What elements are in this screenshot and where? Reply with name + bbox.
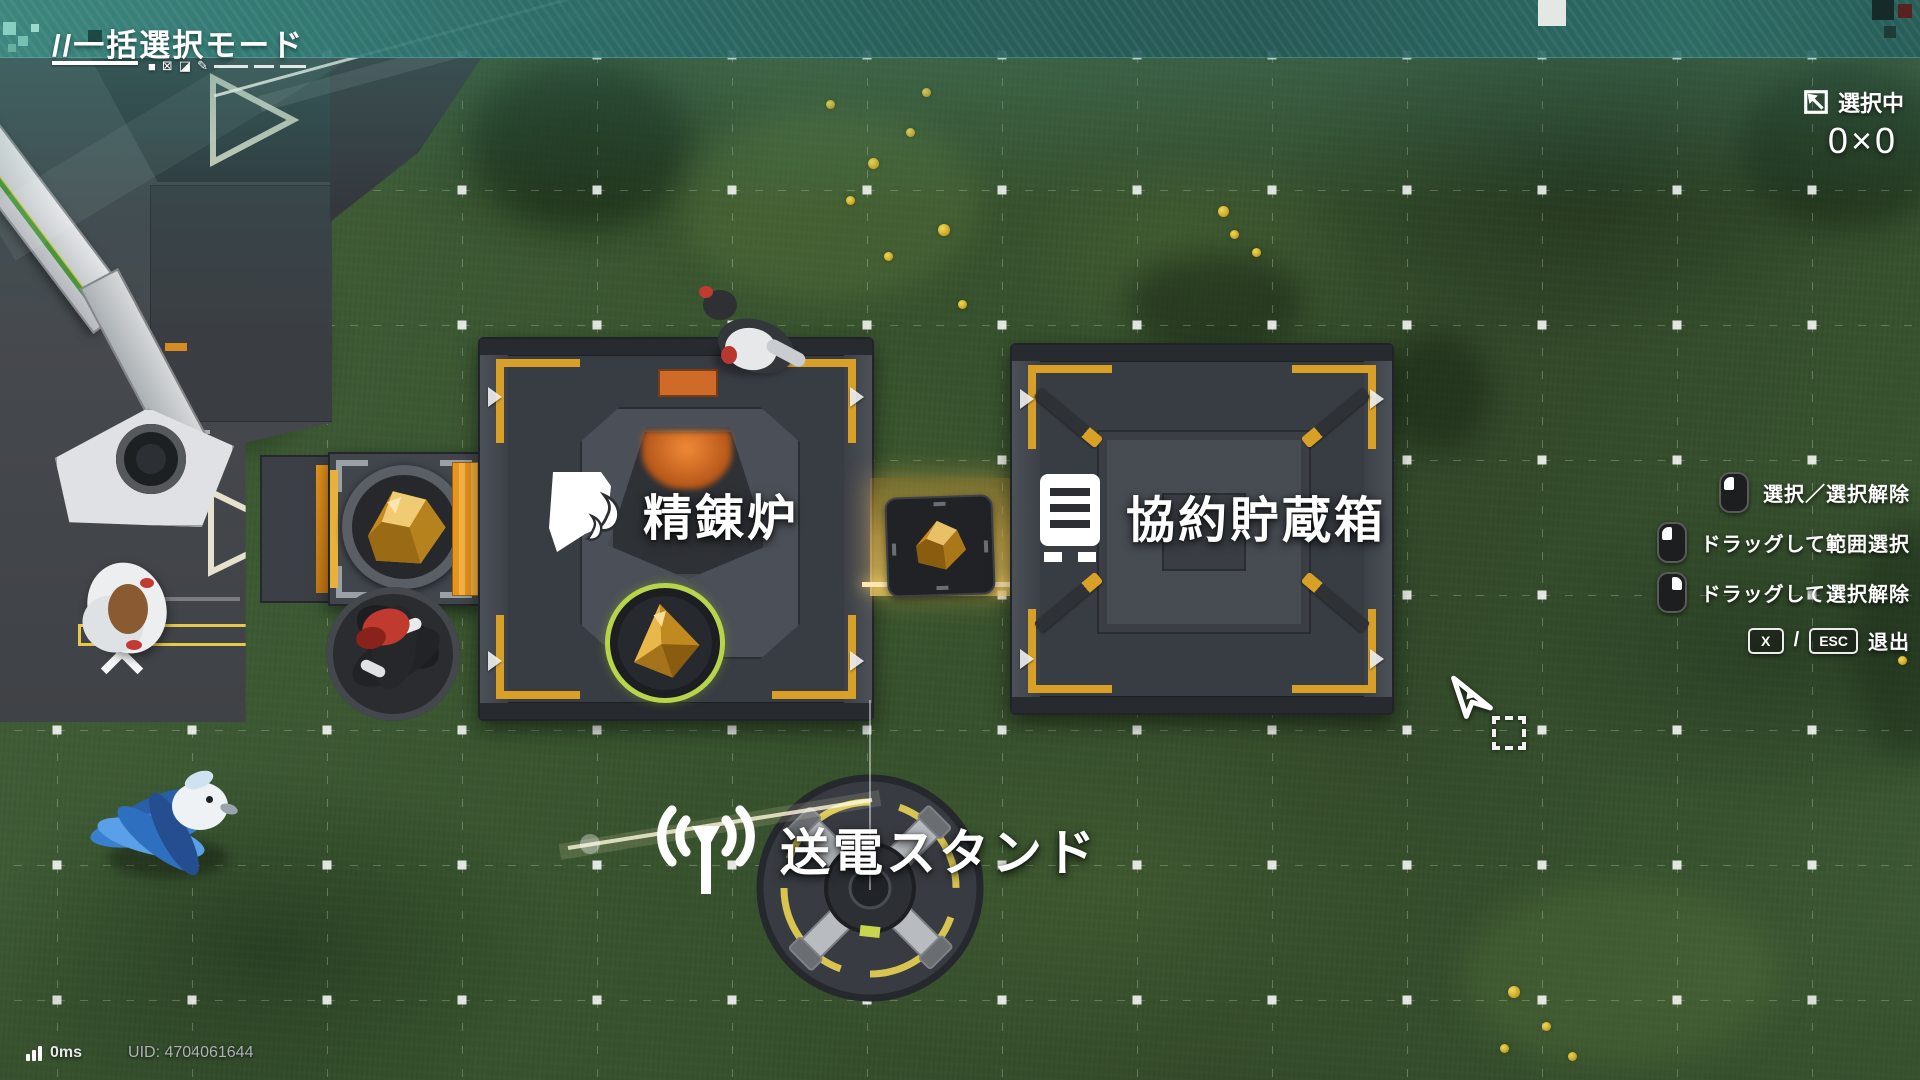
hint-exit: X / ESC 退出 [1748,626,1910,655]
key-x: X [1748,628,1784,654]
status-bar: 0ms UID: 4704061644 [26,1044,253,1062]
banner-pixel-decor [18,36,28,46]
banner-pixel-decor [8,44,16,52]
uid-value: UID: 4704061644 [128,1044,253,1062]
filled-square-icon: ■ [148,59,156,74]
mini-text-bar [254,65,274,68]
hint-exit-label: 退出 [1868,626,1910,655]
hint-drag-deselect-label: ドラッグして選択解除 [1701,578,1910,607]
banner-pixel-decor [1884,26,1896,38]
mouse-left-icon [1657,522,1687,563]
hint-drag-deselect: ドラッグして選択解除 [1657,572,1910,613]
selection-status: 選択中 0×0 [1802,86,1904,162]
hint-drag-select: ドラッグして範囲選択 [1657,522,1910,563]
game-viewport: 精錬炉 協約貯蔵箱 送電スタンド [0,0,1920,1080]
selection-area-icon [1802,88,1830,116]
hint-select-label: 選択／選択解除 [1763,478,1910,507]
mouse-right-icon [1657,572,1687,613]
key-esc: ESC [1809,628,1858,654]
edit-pencil-icon: ✎ [197,58,208,74]
banner-pixel-decor [3,22,16,35]
cursor-cell-marker [1492,716,1526,750]
banner-pixel-decor [31,24,39,32]
banner-pixel-decor [1538,0,1566,26]
selection-status-label: 選択中 [1838,86,1904,118]
hint-select: 選択／選択解除 [1719,472,1910,513]
checked-square-icon: ⊠ [162,58,173,74]
mode-title-underline [52,61,138,65]
half-square-icon: ◪ [179,58,191,74]
key-separator: / [1794,629,1800,652]
mouse-left-icon [1719,472,1749,513]
ping-value: 0ms [50,1044,82,1062]
mode-icon-row: ■ ⊠ ◪ ✎ [148,58,306,74]
signal-bars-icon [26,1046,42,1061]
mini-text-bar [214,65,248,68]
cursor-pointer-icon [1448,674,1496,722]
banner-pixel-decor [1898,4,1912,18]
light-beams [0,0,1920,1080]
banner-pixel-decor [1872,0,1894,20]
hint-drag-select-label: ドラッグして範囲選択 [1701,528,1910,557]
mini-text-bar [280,65,306,68]
selection-count: 0×0 [1802,120,1904,162]
